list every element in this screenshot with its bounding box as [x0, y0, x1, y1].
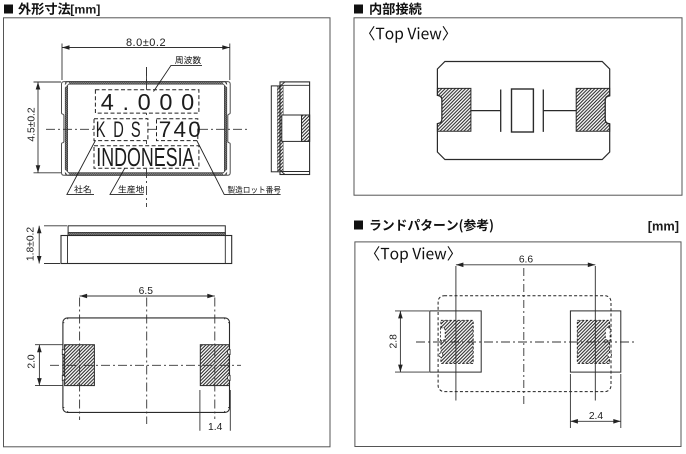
- svg-text:D: D: [113, 118, 124, 143]
- svg-text:2.0: 2.0: [27, 354, 38, 369]
- svg-text:6.5: 6.5: [139, 286, 154, 297]
- svg-text:[mm]: [mm]: [648, 219, 679, 234]
- svg-text:K: K: [96, 118, 106, 143]
- svg-text:1.8±0.2: 1.8±0.2: [25, 227, 36, 262]
- svg-text:INDONESIA: INDONESIA: [96, 143, 194, 172]
- svg-text:6.6: 6.6: [519, 255, 534, 266]
- svg-text:1.4: 1.4: [208, 422, 223, 433]
- svg-text:8.0±0.2: 8.0±0.2: [126, 37, 166, 49]
- svg-text:2.4: 2.4: [589, 411, 604, 422]
- svg-text:2.8: 2.8: [388, 334, 399, 349]
- svg-text:S: S: [131, 118, 141, 143]
- svg-text:[mm]: [mm]: [70, 3, 100, 17]
- svg-text:740: 740: [159, 117, 203, 142]
- svg-text:4.5±0.2: 4.5±0.2: [26, 107, 37, 142]
